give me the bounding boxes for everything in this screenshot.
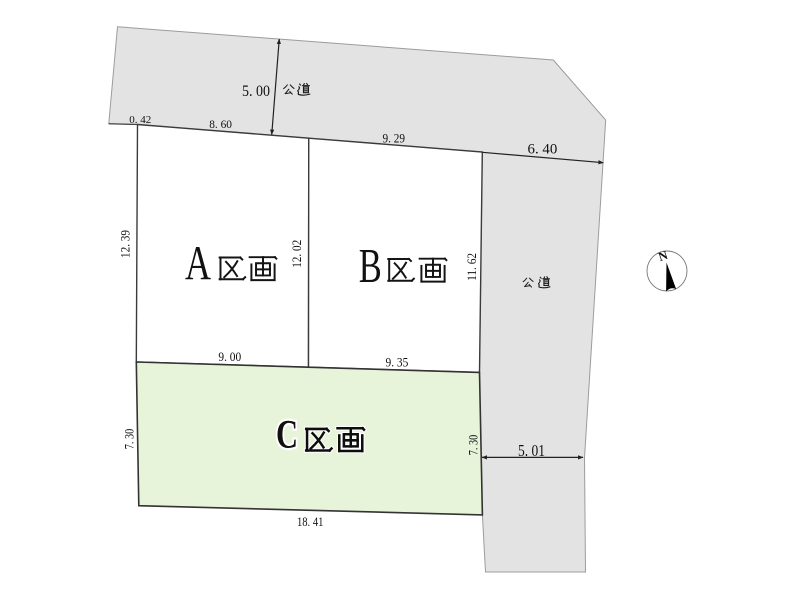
svg-text:B: B [359,238,382,293]
svg-text:12. 39: 12. 39 [119,230,133,258]
svg-text:6. 40: 6. 40 [528,141,558,157]
svg-text:9. 29: 9. 29 [383,132,406,146]
svg-text:12. 02: 12. 02 [290,240,304,268]
svg-text:11. 62: 11. 62 [465,253,479,281]
svg-text:9. 35: 9. 35 [386,356,409,370]
svg-text:5. 01: 5. 01 [518,441,545,460]
svg-text:7. 30: 7. 30 [123,429,137,450]
svg-text:5. 00: 5. 00 [242,83,270,100]
svg-text:A: A [185,235,211,290]
svg-text:8. 60: 8. 60 [209,119,232,131]
svg-text:C: C [276,411,298,456]
svg-text:0. 42: 0. 42 [129,115,151,126]
svg-text:9. 00: 9. 00 [218,350,241,364]
svg-text:7. 30: 7. 30 [467,435,481,456]
svg-text:18. 41: 18. 41 [297,514,324,529]
